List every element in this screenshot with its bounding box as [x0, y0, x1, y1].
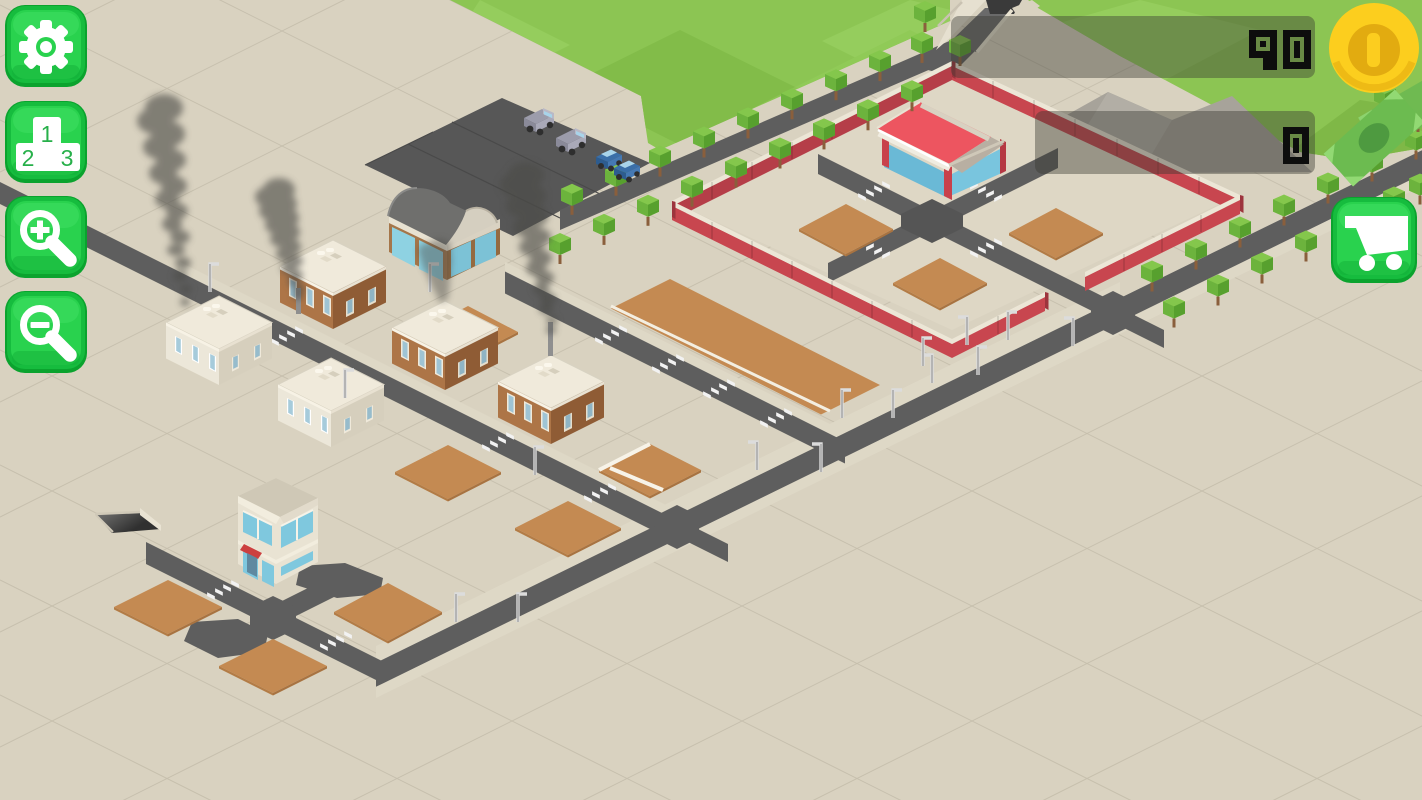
svg-text:1: 1	[41, 121, 54, 147]
svg-text:3: 3	[61, 145, 74, 171]
svg-text:2: 2	[22, 145, 35, 171]
